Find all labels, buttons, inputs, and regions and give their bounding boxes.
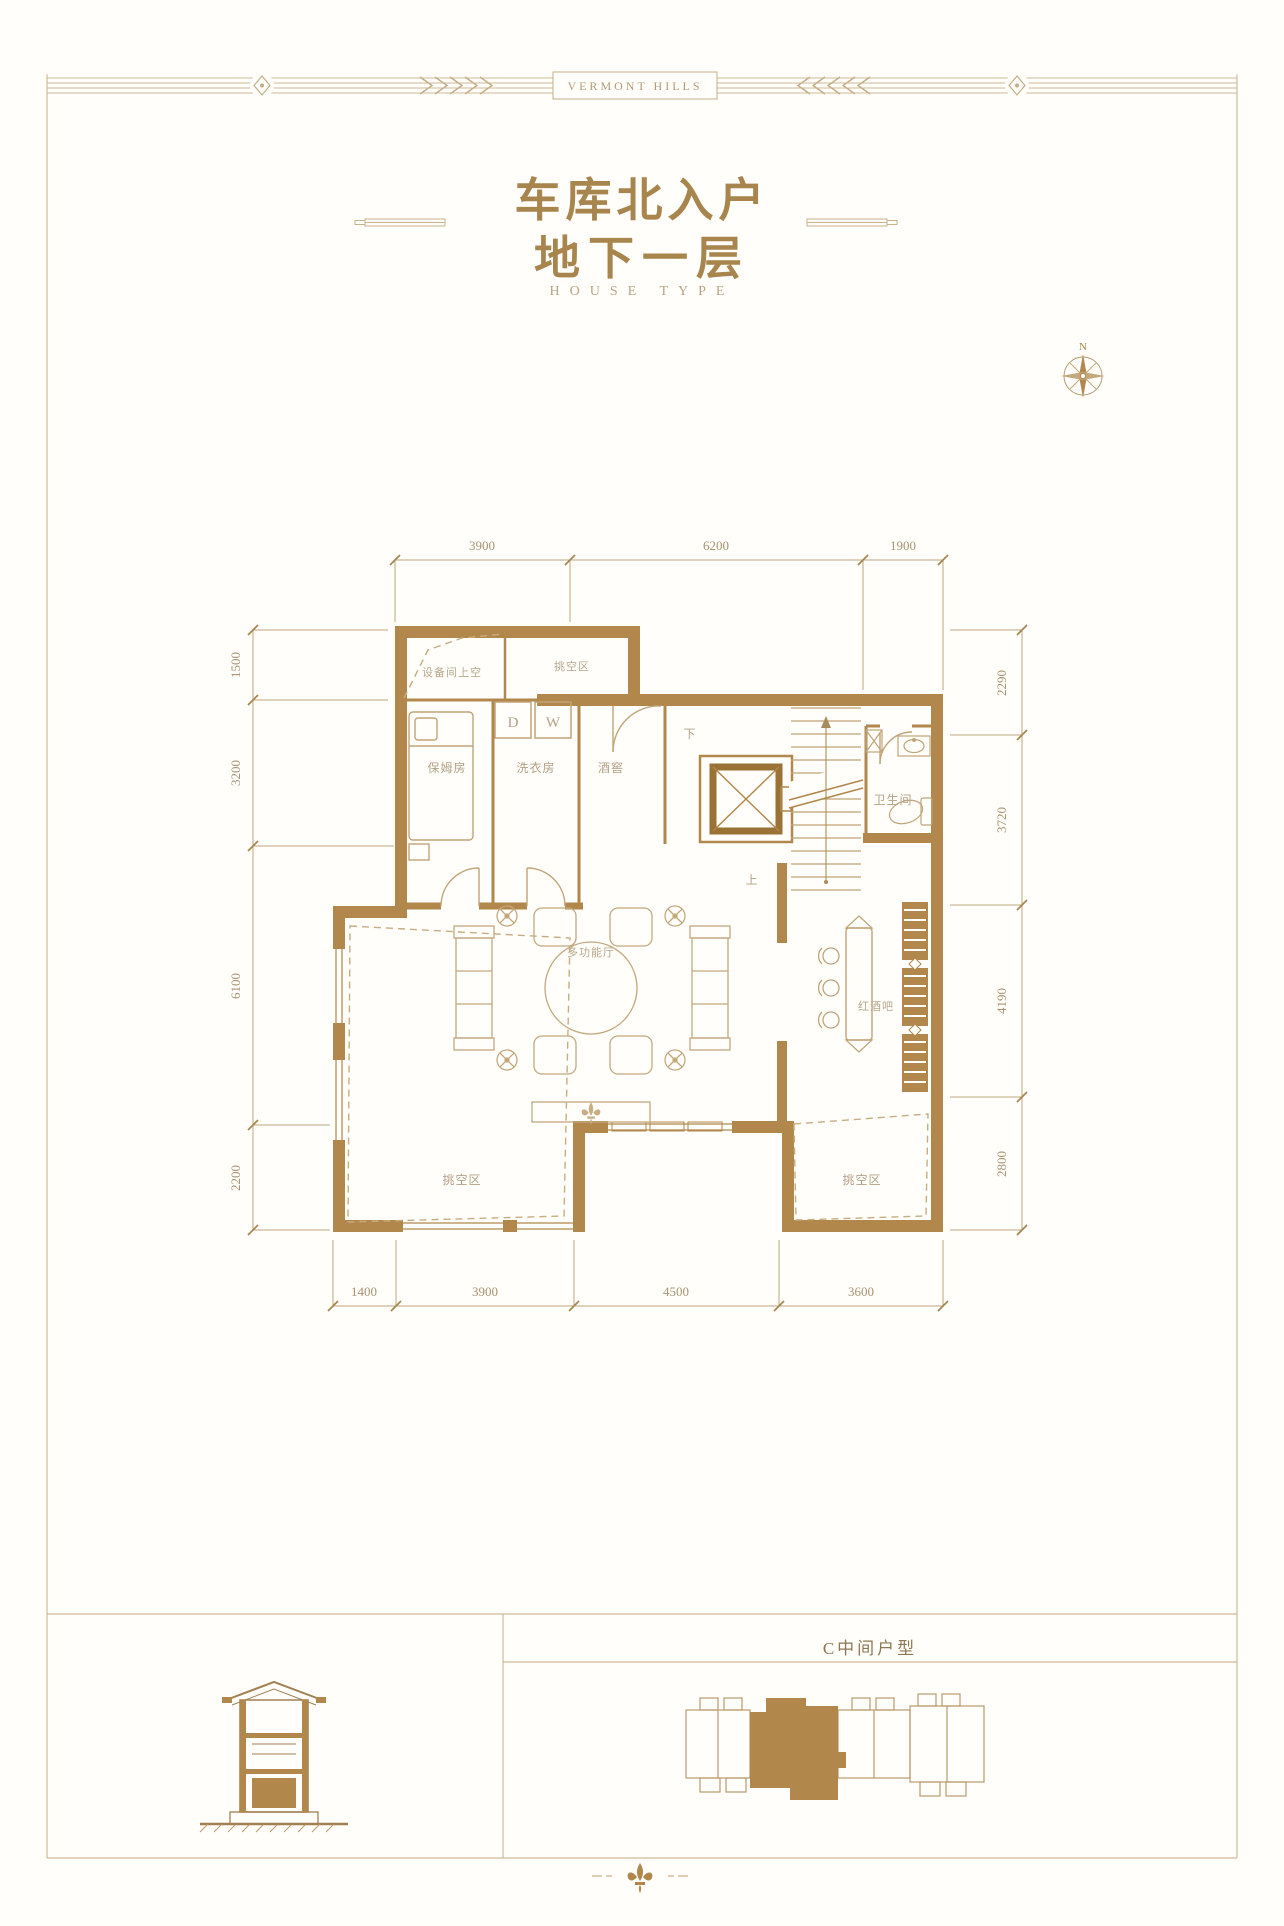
dim-left-1: 1500 — [228, 652, 243, 678]
room-void-top: 挑空区 — [554, 659, 590, 673]
building-footprint-drawing — [686, 1694, 984, 1800]
room-equipment-void: 设备间上空 — [422, 665, 482, 679]
highlighted-unit-c — [750, 1698, 846, 1800]
room-void-bl: 挑空区 — [442, 1173, 481, 1187]
plan-windows — [331, 949, 732, 1234]
dryer-label: D — [508, 715, 519, 731]
banner-medallion-left — [250, 74, 274, 98]
room-nanny: 保姆房 — [427, 760, 466, 775]
brochure-page: VERMONT HILLS N — [0, 0, 1284, 1926]
room-laundry: 洗衣房 — [516, 760, 555, 775]
wine-racks — [902, 902, 928, 1092]
room-wine-bar: 红酒吧 — [858, 1000, 894, 1013]
compass-north-label: N — [1079, 341, 1087, 353]
bottom-fleur-ornament — [592, 1863, 688, 1893]
title-ornaments — [355, 219, 897, 226]
top-banner: VERMONT HILLS — [47, 72, 1237, 99]
dim-top-3: 1900 — [890, 538, 916, 553]
plan-elevator — [700, 756, 792, 842]
plan-doors — [441, 706, 912, 906]
plan-laundry: D W — [495, 702, 571, 738]
plan-bed — [409, 712, 473, 860]
dim-top-2: 6200 — [703, 538, 729, 553]
room-void-br: 挑空区 — [842, 1173, 881, 1187]
dim-right-4: 2800 — [994, 1151, 1009, 1177]
dims-left: 1500 3200 6100 2200 — [228, 625, 394, 1235]
plan-bathroom-fixtures — [866, 730, 932, 828]
stairs-down-label: 下 — [683, 727, 696, 741]
dim-bottom-4: 3600 — [848, 1284, 874, 1299]
dim-right-2: 3720 — [994, 807, 1009, 833]
stairs-up-label: 上 — [745, 873, 758, 887]
building-section-drawing — [200, 1682, 348, 1832]
dim-bottom-3: 4500 — [663, 1284, 689, 1299]
plan-hall-furniture — [454, 906, 730, 1122]
compass: N — [1061, 341, 1105, 398]
dim-left-2: 3200 — [228, 760, 243, 786]
plan-walls — [333, 626, 943, 1232]
unit-type-label: C中间户型 — [503, 1634, 1237, 1659]
dims-bottom: 1400 3900 4500 3600 — [328, 1240, 948, 1311]
corner-plant-symbols — [497, 906, 685, 1070]
plan-winebar — [819, 902, 928, 1092]
dims-right: 2290 3720 4190 2800 — [950, 625, 1027, 1235]
chevrons-left — [798, 77, 870, 94]
banner-medallion-right — [1005, 74, 1029, 98]
dim-right-1: 2290 — [994, 670, 1009, 696]
brand-text: VERMONT HILLS — [567, 79, 702, 93]
room-multi-hall: 多功能厅 — [567, 945, 615, 959]
dim-bottom-2: 3900 — [472, 1284, 498, 1299]
plan-stairs — [789, 708, 863, 890]
room-wine-cellar: 酒窖 — [598, 760, 624, 775]
dim-bottom-1: 1400 — [351, 1284, 377, 1299]
dim-right-3: 4190 — [994, 988, 1009, 1014]
dim-left-3: 6100 — [228, 973, 243, 999]
page-border — [47, 76, 1237, 1858]
room-bathroom: 卫生间 — [873, 793, 912, 807]
chevrons-right — [420, 77, 492, 94]
dim-top-1: 3900 — [469, 538, 495, 553]
washer-label: W — [546, 715, 561, 731]
dim-left-4: 2200 — [228, 1165, 243, 1191]
